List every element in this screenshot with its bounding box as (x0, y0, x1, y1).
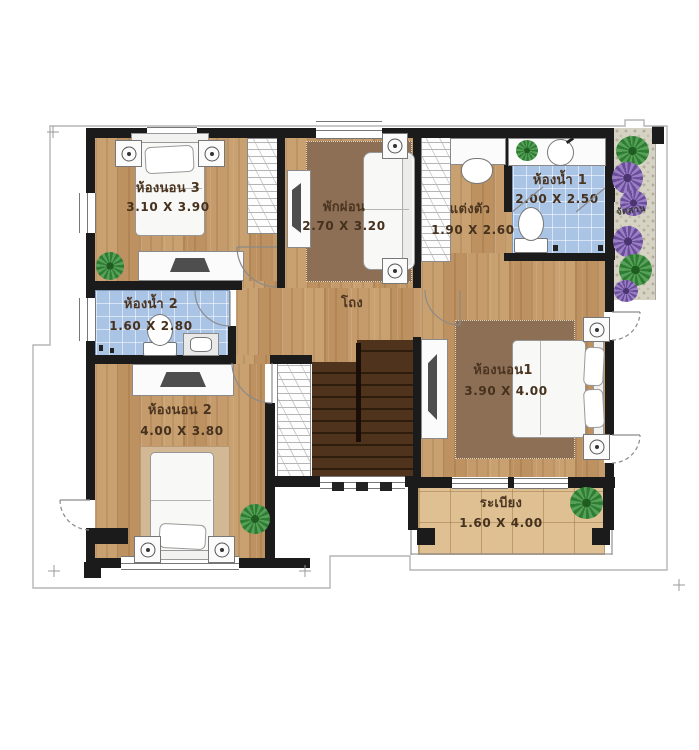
wall-bedroom3-lounge (277, 128, 285, 288)
bedroom1-dims: 3.90 X 4.00 (464, 384, 547, 398)
hall-closet (277, 362, 311, 478)
mullion-2 (356, 482, 368, 491)
bedroom2-blanket-line (151, 500, 211, 501)
plant-icon (240, 504, 270, 534)
lounge-dims: 2.70 X 3.20 (302, 219, 385, 233)
bathroom1-label: ห้องน้ำ 1 (533, 169, 587, 190)
bedroom1-pillow-bottom (583, 389, 605, 429)
door-bedroom1-right-2 (612, 435, 640, 463)
window-bedroom3-left (79, 193, 96, 233)
balcony-dims: 1.60 X 4.00 (459, 516, 542, 530)
lounge-tv (292, 183, 301, 233)
balcony-label: ระเบียง (480, 492, 522, 513)
wall-bedroom2-step (86, 528, 128, 544)
bathroom2-dims: 1.60 X 2.80 (109, 319, 192, 333)
bedroom3-dresser-tv (170, 258, 210, 272)
wall-bath1-bottom (504, 253, 614, 261)
hall-label: โถง (341, 292, 363, 313)
bedroom3-nightstand-right (198, 140, 225, 167)
bedroom1-label: ห้องนอน1 (473, 359, 532, 380)
stub-garden-2 (605, 248, 615, 260)
wall-bedroom2-bottom-2 (238, 558, 310, 568)
plant-icon (96, 252, 124, 280)
mullion-1 (332, 482, 344, 491)
wall-bedroom1-right-1 (605, 253, 614, 312)
bedroom1-pillow-top (583, 347, 605, 387)
bathroom2-label: ห้องน้ำ 2 (124, 293, 178, 314)
plant-icon (570, 487, 603, 519)
wall-bedroom1-right-2 (605, 340, 614, 435)
bedroom1-tv (428, 354, 437, 420)
column-garden-top-right (652, 126, 664, 144)
sliding-door-balcony-1 (452, 478, 508, 489)
lounge-label: พักผ่อน (323, 196, 365, 217)
wall-corridor-stub (270, 355, 312, 364)
stairs-main-flight (312, 362, 413, 478)
garden-plant-purple-3 (613, 226, 643, 257)
bedroom1-nightstand-top (583, 317, 610, 342)
stairs-upper-flight (357, 340, 413, 364)
bedroom2-pillow (158, 523, 206, 550)
garden-plant-purple-1 (612, 162, 643, 194)
bedroom3-label: ห้องนอน 3 (136, 177, 200, 198)
mullion-3 (380, 482, 392, 491)
bedroom2-dresser-tv (160, 372, 206, 387)
bedroom2-label: ห้องนอน 2 (148, 399, 212, 420)
bath2-vanity-basin (190, 337, 212, 352)
bedroom3-dims: 3.10 X 3.90 (126, 200, 209, 214)
door-bedroom1-right-1 (612, 312, 640, 340)
window-lounge-top (316, 121, 382, 139)
door-gap-floor-bedroom2 (232, 355, 270, 364)
dressing-wardrobe (421, 133, 451, 262)
stub-garden-1 (605, 188, 615, 202)
wall-stairs-bottom-1 (275, 476, 320, 487)
wall-bedroom1-right-3 (605, 463, 614, 477)
bedroom3-pillow (144, 145, 194, 175)
lounge-side-table-top (382, 133, 408, 159)
bath1-round-basin (547, 139, 574, 166)
dressing-vanity-basin (461, 158, 493, 184)
plant-icon (516, 140, 538, 161)
column-balcony-left (417, 528, 435, 545)
dressing-dims: 1.90 X 2.60 (431, 223, 514, 237)
column-balcony-right (592, 528, 610, 545)
lounge-side-table-bottom (382, 258, 408, 284)
bath2-faucet-2 (110, 348, 114, 353)
bedroom3-nightstand-left (115, 140, 142, 167)
column-bottom-left (84, 562, 101, 578)
bathroom1-dims: 2.00 X 2.50 (515, 192, 598, 206)
dressing-label: แต่งตัว (450, 198, 490, 219)
wall-bedroom3-bottom (86, 281, 242, 290)
lounge-sofa-cushion-line (365, 209, 409, 210)
door-exterior-left (60, 500, 90, 530)
bedroom1-nightstand-bottom (583, 434, 610, 460)
window-bath2-left (79, 298, 96, 341)
wall-balcony-right (603, 477, 614, 530)
garden-plant-purple-4 (614, 280, 638, 302)
stairs-handrail (356, 343, 361, 442)
wall-bedroom2-right (265, 403, 275, 568)
sliding-door-balcony-2 (514, 478, 568, 489)
bedroom3-closet (247, 138, 279, 234)
garden-plant-green-1 (616, 136, 649, 166)
bath1-faucet-1 (553, 245, 558, 251)
bedroom2-nightstand-right (208, 536, 235, 563)
bath1-toilet-bowl (518, 207, 544, 241)
wall-left-1 (86, 128, 95, 193)
wall-left-3 (86, 340, 95, 500)
wall-stairs-bedroom1 (413, 337, 421, 480)
bedroom2-nightstand-left (134, 536, 161, 563)
bath2-faucet-1 (99, 345, 103, 351)
floor-plan: ห้องนอน 3 3.10 X 3.90 พักผ่อน 2.70 X 3.2… (0, 0, 699, 750)
wall-bath2-bottom (86, 355, 232, 364)
bath1-faucet-2 (598, 245, 603, 251)
lounge-sofa-back (402, 155, 412, 265)
wall-bedroom1-bottom-1 (408, 477, 452, 488)
bedroom2-dims: 4.00 X 3.80 (140, 424, 223, 438)
